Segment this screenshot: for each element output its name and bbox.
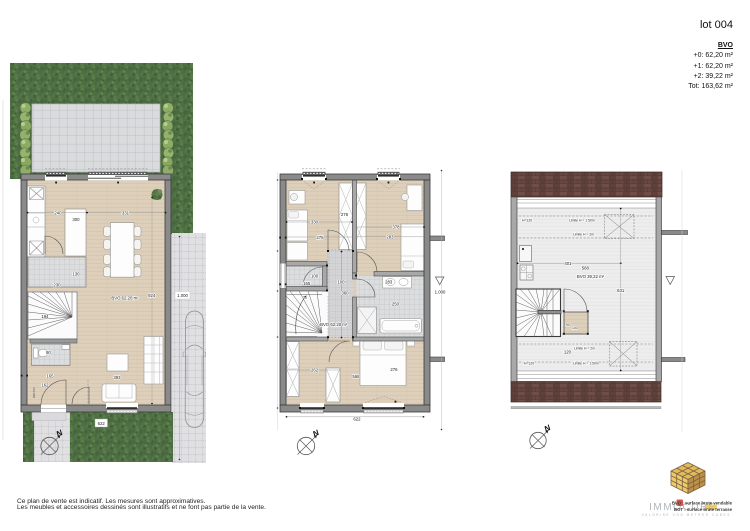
svg-text:1.000: 1.000	[177, 293, 188, 298]
svg-text:278: 278	[341, 212, 349, 217]
svg-text:162: 162	[41, 383, 49, 388]
svg-text:H=120: H=120	[524, 362, 534, 366]
svg-text:331: 331	[122, 210, 130, 215]
svg-text:262: 262	[311, 368, 319, 373]
svg-text:N: N	[543, 423, 553, 434]
svg-text:401: 401	[564, 261, 572, 266]
svg-text:90: 90	[566, 323, 570, 327]
svg-text:Limite H = 2m: Limite H = 2m	[574, 347, 595, 351]
svg-text:568: 568	[352, 374, 360, 379]
svg-text:BVO 39,22 m²: BVO 39,22 m²	[577, 274, 605, 279]
svg-text:100: 100	[311, 273, 319, 278]
svg-text:330: 330	[311, 220, 319, 225]
svg-text:230: 230	[53, 282, 61, 287]
svg-text:240: 240	[54, 210, 62, 215]
svg-text:622: 622	[353, 417, 361, 422]
svg-text:622: 622	[98, 421, 106, 426]
svg-text:275: 275	[316, 235, 324, 240]
svg-text:BOT : surface brute terrasse: BOT : surface brute terrasse	[674, 507, 733, 512]
svg-text:VALORISE VOS METRES CUBES: VALORISE VOS METRES CUBES	[642, 513, 731, 517]
svg-text:283: 283	[386, 235, 394, 240]
svg-text:283: 283	[385, 280, 393, 285]
svg-text:100: 100	[337, 280, 345, 285]
svg-text:250: 250	[392, 301, 400, 306]
svg-text:924: 924	[148, 293, 156, 298]
svg-text:120: 120	[564, 350, 572, 355]
svg-text:378: 378	[392, 225, 400, 230]
svg-text:194: 194	[41, 314, 49, 319]
svg-text:300: 300	[72, 217, 80, 222]
svg-text:631: 631	[617, 288, 625, 293]
svg-text:360: 360	[341, 291, 349, 296]
svg-text:BVO 62,20 m²: BVO 62,20 m²	[111, 296, 139, 301]
svg-text:276: 276	[390, 367, 398, 372]
svg-text:165: 165	[303, 281, 311, 286]
svg-text:1.000: 1.000	[435, 290, 446, 295]
svg-text:Ø90 PVC: Ø90 PVC	[32, 387, 36, 398]
svg-text:Limite H = 1.50m: Limite H = 1.50m	[573, 362, 599, 366]
svg-text:Limite H = 2m: Limite H = 2m	[573, 233, 594, 237]
svg-text:N: N	[311, 428, 321, 439]
svg-text:568: 568	[582, 266, 590, 271]
svg-text:165: 165	[46, 374, 54, 379]
svg-text:BVO 62,20 m²: BVO 62,20 m²	[320, 322, 348, 327]
svg-text:BVO : surface brute vendable: BVO : surface brute vendable	[672, 501, 733, 506]
svg-text:100: 100	[572, 326, 578, 330]
svg-text:393: 393	[113, 375, 121, 380]
svg-text:90: 90	[46, 350, 51, 355]
svg-text:Limite H = 1.50m: Limite H = 1.50m	[569, 219, 595, 223]
svg-text:H=120: H=120	[522, 219, 532, 223]
svg-text:130: 130	[72, 272, 80, 277]
